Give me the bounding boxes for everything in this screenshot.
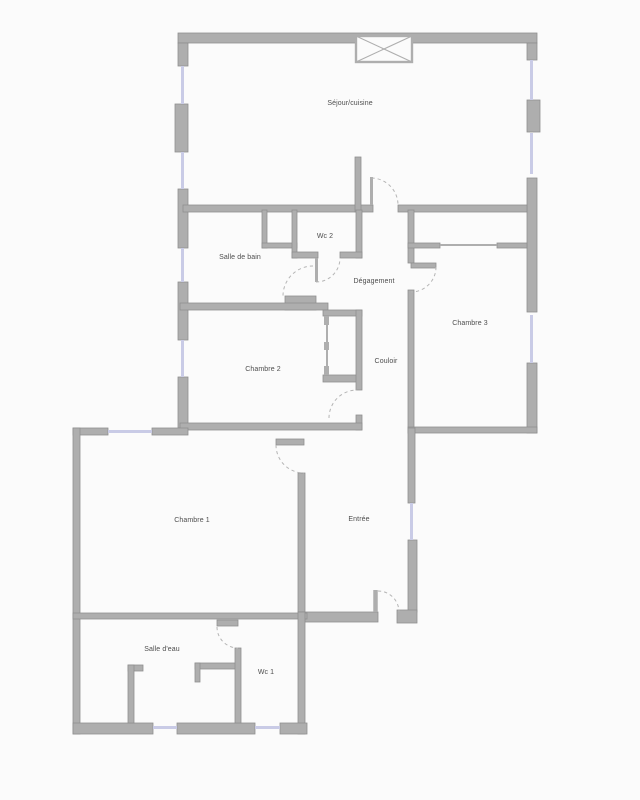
chimney-symbol-icon xyxy=(356,36,412,62)
windows xyxy=(108,60,533,729)
room-label-chambre-1: Chambre 1 xyxy=(174,517,210,525)
room-label-salle-de-bain: Salle de bain xyxy=(219,254,261,262)
room-label-chambre-3: Chambre 3 xyxy=(452,320,488,328)
room-label-couloir: Couloir xyxy=(375,358,398,366)
room-label-wc-1: Wc 1 xyxy=(258,669,274,677)
room-label-wc-2: Wc 2 xyxy=(317,233,333,241)
door-leaves xyxy=(317,177,376,612)
walls xyxy=(73,33,540,734)
room-label-salle-d-eau: Salle d'eau xyxy=(144,646,180,654)
room-label-sejour-cuisine: Séjour/cuisine xyxy=(327,100,372,108)
room-label-entree: Entrée xyxy=(348,516,369,524)
door-arcs xyxy=(217,178,436,648)
room-label-degagement: Dégagement xyxy=(353,278,394,286)
floor-plan-page: Séjour/cuisine Salle de bain Wc 2 Dégage… xyxy=(0,0,640,800)
room-label-chambre-2: Chambre 2 xyxy=(245,366,281,374)
floor-plan-drawing xyxy=(0,0,640,800)
